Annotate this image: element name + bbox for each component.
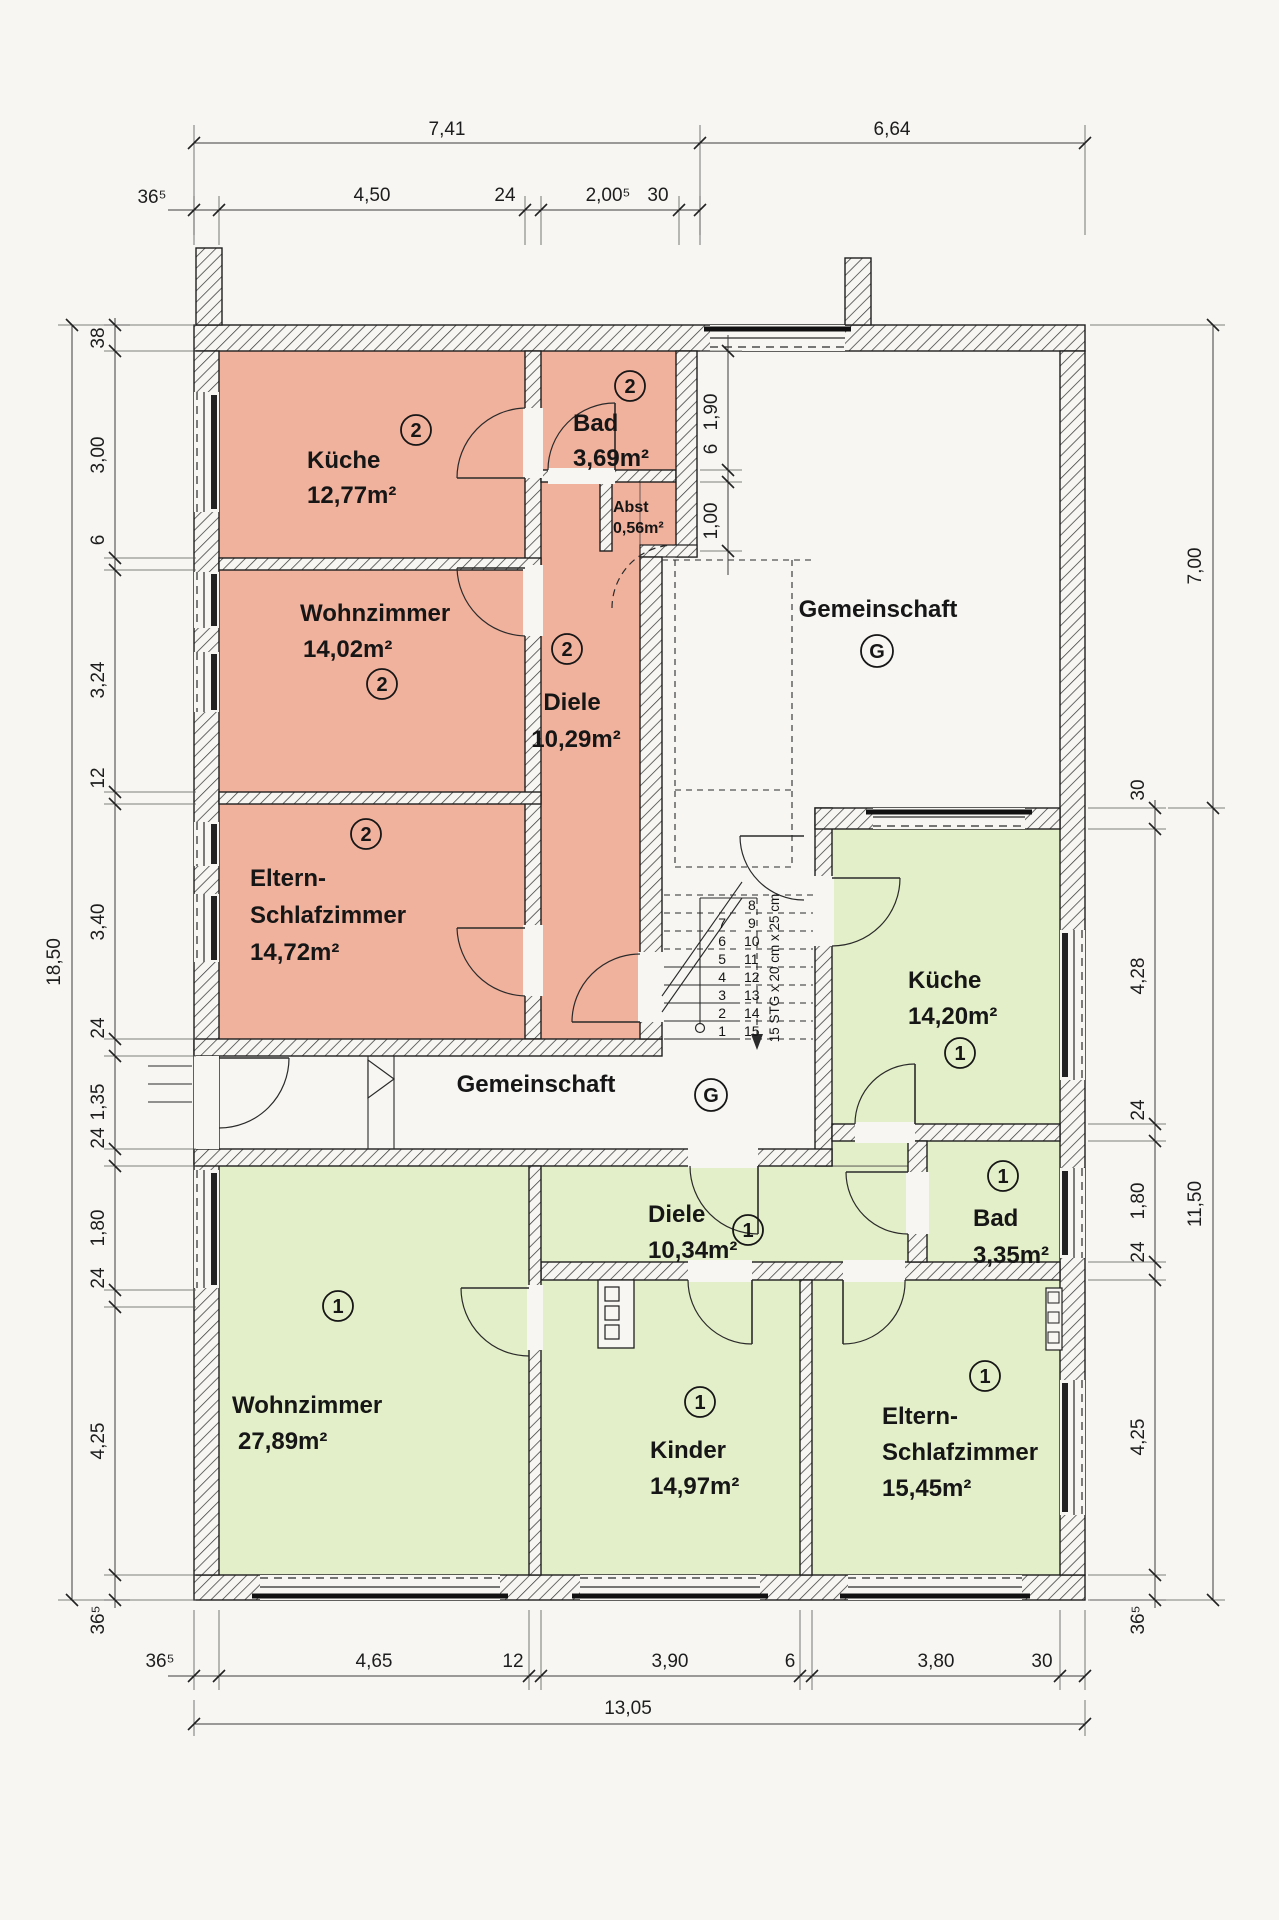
window-kinder-bottom [572, 1575, 768, 1600]
wall-apt2-south [194, 1039, 662, 1056]
step-14: 14 [744, 1005, 760, 1021]
label-eltern1-name2: Schlafzimmer [882, 1439, 1038, 1466]
label-diele2-name: Diele [543, 689, 600, 716]
dim-b-465: 4,65 [356, 1651, 393, 1672]
window-eltern1-right [1060, 1380, 1085, 1515]
dim-b-365: 36⁵ [145, 1651, 174, 1672]
dim-r-24b: 24 [1128, 1241, 1149, 1263]
label-gemeinschaft-middle: Gemeinschaft [457, 1071, 616, 1098]
dim-l-135: 1,35 [88, 1084, 109, 1121]
wall-stair-north-stub [640, 545, 697, 557]
label-bad2-name: Bad [573, 410, 618, 437]
label-abst-name: Abst [613, 499, 649, 516]
label-abst-area: 0,56m² [613, 520, 664, 537]
dim-right-chain: 30 4,28 24 1,80 24 4,25 36⁵ [1088, 779, 1166, 1634]
dim-r-30: 30 [1128, 779, 1149, 800]
dim-r-365: 36⁵ [1128, 1605, 1149, 1634]
label-gemeinschaft-upper: Gemeinschaft [799, 596, 958, 623]
dim-l-180: 1,80 [88, 1210, 109, 1247]
step-10: 10 [744, 933, 760, 949]
dim-r-428: 4,28 [1128, 958, 1149, 995]
label-wohnzimmer1-area: 27,89m² [238, 1428, 327, 1455]
dim-b-30: 30 [1031, 1651, 1052, 1672]
dim-1150: 11,50 [1185, 1181, 1206, 1227]
dim-l-324: 3,24 [88, 661, 109, 698]
window-kueche1-north [866, 808, 1032, 829]
dim-664: 6,64 [874, 119, 911, 140]
label-eltern2-name2: Schlafzimmer [250, 902, 406, 929]
dim-b-6: 6 [785, 1651, 796, 1672]
room-wohnzimmer-apt1 [219, 1166, 529, 1575]
step-2: 2 [718, 1005, 726, 1021]
dim-450: 4,50 [354, 185, 391, 206]
badge-kinder: 1 [694, 1392, 705, 1414]
badge-g-upper: G [869, 641, 885, 663]
label-eltern1-area: 15,45m² [882, 1475, 971, 1502]
step-6: 6 [718, 933, 726, 949]
dim-l-365: 36⁵ [88, 1605, 109, 1634]
dim-left-chain: 38 3,00 6 3,24 12 3,40 24 1,35 24 1,80 2… [88, 318, 196, 1635]
dim-1305: 13,05 [604, 1698, 652, 1719]
step-1: 1 [718, 1023, 726, 1039]
entrance-steps [148, 1066, 192, 1102]
window-bad1-right [1060, 1168, 1085, 1258]
dim-right-overall: 7,00 11,50 [1090, 319, 1225, 1606]
dim-700: 7,00 [1185, 548, 1206, 585]
staircase: 1 2 3 4 5 6 7 8 9 10 11 12 13 14 15 15 S… [662, 560, 815, 1050]
dim-b-390: 3,90 [652, 1651, 689, 1672]
badge-wohnzimmer2: 2 [376, 674, 387, 696]
window-wohnzimmer1-left [194, 1170, 219, 1288]
window-kueche2 [194, 392, 219, 512]
dim-bad2-chain: 1,90 6 1,00 [700, 335, 742, 575]
window-eltern1-bottom [840, 1575, 1030, 1600]
step-15: 15 [744, 1023, 760, 1039]
label-wohnzimmer2-name: Wohnzimmer [300, 600, 450, 627]
dim-l-24b: 24 [88, 1127, 109, 1149]
dim-100: 1,00 [701, 503, 722, 540]
step-12: 12 [744, 969, 760, 985]
floorplan-sheet: 1 2 3 4 5 6 7 8 9 10 11 12 13 14 15 15 S… [0, 0, 1279, 1920]
label-kinder-area: 14,97m² [650, 1473, 739, 1500]
dim-l-6: 6 [88, 535, 109, 546]
dim-r-180: 1,80 [1128, 1183, 1149, 1220]
dim-b-12: 12 [502, 1651, 523, 1672]
window-wohnzimmer2-a [194, 572, 219, 628]
label-wohnzimmer1-name: Wohnzimmer [232, 1392, 382, 1419]
door-building-entrance [194, 1056, 289, 1149]
wall-bad2-east [676, 351, 697, 557]
chimney-diele1 [598, 1280, 634, 1348]
dim-l-24a: 24 [88, 1017, 109, 1039]
label-eltern1-name1: Eltern- [882, 1403, 958, 1430]
wall-exterior-top [194, 325, 1085, 351]
window-wohnzimmer1-bottom [252, 1575, 508, 1600]
badge-bad1: 1 [997, 1166, 1008, 1188]
step-11: 11 [744, 951, 759, 967]
label-diele1-name: Diele [648, 1201, 705, 1228]
window-wohnzimmer2-b [194, 652, 219, 712]
wall-exterior-left [194, 351, 219, 1575]
room-kinder-apt1 [541, 1280, 800, 1575]
badge-diele1: 1 [742, 1220, 753, 1242]
wall-wohnzimmer1-east [529, 1166, 541, 1575]
label-diele2-area: 10,29m² [531, 726, 620, 753]
dim-741: 7,41 [429, 119, 466, 140]
badge-g-middle: G [703, 1085, 719, 1107]
window-eltern2-a [194, 822, 219, 866]
wall-kinder-eltern [800, 1280, 812, 1575]
vestibule-partition [368, 1056, 394, 1149]
dim-2005: 2,00⁵ [586, 185, 631, 206]
dim-l-38: 38 [88, 327, 109, 348]
window-gemeinschaft-top [704, 325, 851, 351]
label-kueche1-name: Küche [908, 967, 981, 994]
label-bad2-area: 3,69m² [573, 445, 649, 472]
step-8: 8 [748, 897, 756, 913]
dim-1850: 18,50 [44, 938, 65, 986]
badge-diele2: 2 [561, 639, 572, 661]
dim-l-340: 3,40 [88, 904, 109, 941]
dim-bottom-chain: 36⁵ 4,65 12 3,90 6 3,80 30 [145, 1610, 1091, 1690]
dim-l-425: 4,25 [88, 1423, 109, 1460]
dim-190: 1,90 [701, 394, 722, 431]
wall-stair-east [815, 808, 832, 1166]
label-wohnzimmer2-area: 14,02m² [303, 636, 392, 663]
stair-step-numbers: 1 2 3 4 5 6 7 8 9 10 11 12 13 14 15 [718, 897, 760, 1039]
dim-left-overall: 18,50 [44, 319, 130, 1606]
dim-top-chain: 36⁵ 4,50 24 2,00⁵ 30 [137, 185, 706, 245]
dim-24-top: 24 [494, 185, 516, 206]
window-eltern2-b [194, 894, 219, 962]
badge-wohnzimmer1: 1 [332, 1296, 343, 1318]
label-kueche1-area: 14,20m² [908, 1003, 997, 1030]
dim-r-425: 4,25 [1128, 1419, 1149, 1456]
room-diele-apt1-ext [832, 1141, 908, 1166]
badge-kueche2: 2 [410, 420, 421, 442]
chimney-right-wall [1046, 1288, 1062, 1350]
label-bad1-area: 3,35m² [973, 1242, 1049, 1269]
label-diele1-area: 10,34m² [648, 1237, 737, 1264]
step-13: 13 [744, 987, 760, 1003]
step-5: 5 [718, 951, 726, 967]
window-kueche1-right [1060, 930, 1085, 1080]
chimney-stub-left [196, 248, 222, 325]
badge-bad2: 2 [624, 376, 635, 398]
dim-top-overall: 7,41 6,64 [188, 119, 1091, 235]
badge-eltern2: 2 [360, 824, 371, 846]
step-7: 7 [718, 915, 726, 931]
label-kinder-name: Kinder [650, 1437, 726, 1464]
label-eltern2-area: 14,72m² [250, 939, 339, 966]
badge-eltern1: 1 [979, 1366, 990, 1388]
dim-30-top: 30 [647, 185, 668, 206]
dim-bottom-overall: 13,05 [188, 1698, 1091, 1736]
label-kueche2-name: Küche [307, 447, 380, 474]
label-kueche2-area: 12,77m² [307, 482, 396, 509]
floorplan-drawing: 1 2 3 4 5 6 7 8 9 10 11 12 13 14 15 15 S… [0, 0, 1279, 1920]
label-eltern2-name1: Eltern- [250, 865, 326, 892]
door-stairhall-gemeinschaft [740, 836, 804, 900]
dim-r-24a: 24 [1128, 1099, 1149, 1121]
dim-365-top: 36⁵ [137, 187, 166, 208]
stair-note: 15 STG x 20 cm x 25 cm [767, 894, 782, 1043]
dim-6i: 6 [701, 444, 722, 455]
step-4: 4 [718, 969, 726, 985]
chimney-stub-right [845, 258, 871, 325]
wall-abst-west [600, 482, 612, 551]
wall-wohnzimmer2-south [219, 792, 541, 804]
label-bad1-name: Bad [973, 1205, 1018, 1232]
dim-l-12: 12 [88, 767, 109, 788]
dim-b-380: 3,80 [918, 1651, 955, 1672]
step-9: 9 [748, 915, 756, 931]
dim-l-300: 3,00 [88, 437, 109, 474]
badge-kueche1: 1 [954, 1043, 965, 1065]
door-swing-triangle [368, 1060, 394, 1098]
step-3: 3 [718, 987, 726, 1003]
dim-l-24c: 24 [88, 1267, 109, 1289]
